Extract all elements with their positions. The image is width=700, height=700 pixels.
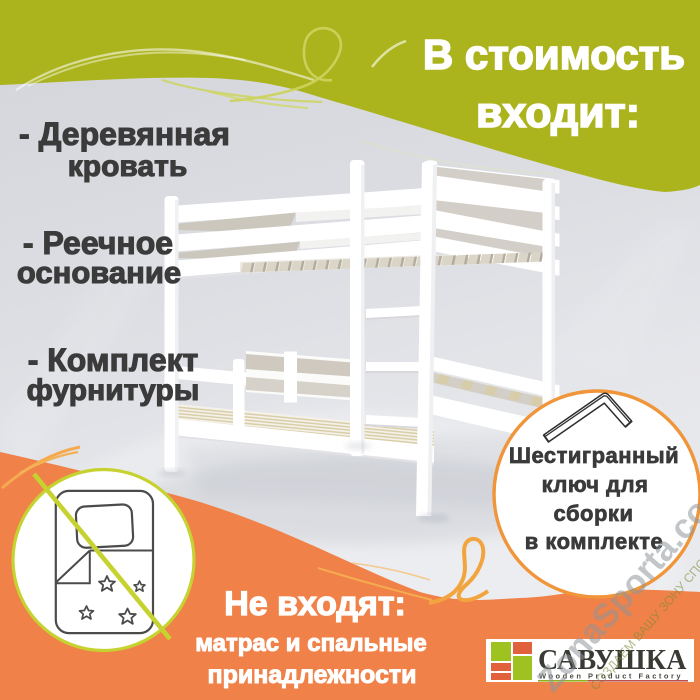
svg-text:входит:: входит: <box>476 89 640 137</box>
svg-text:сборки: сборки <box>554 501 634 526</box>
svg-text:Шестигранный: Шестигранный <box>509 443 679 468</box>
svg-text:принадлежности: принадлежности <box>207 661 416 689</box>
svg-text:- Деревянная: - Деревянная <box>19 116 230 152</box>
svg-text:- Комплект: - Комплект <box>28 342 199 378</box>
svg-text:Не входят:: Не входят: <box>224 585 406 623</box>
svg-text:основание: основание <box>17 255 181 290</box>
svg-text:кровать: кровать <box>68 150 188 183</box>
svg-text:В стоимость: В стоимость <box>423 31 685 78</box>
svg-text:фурнитуры: фурнитуры <box>27 374 200 407</box>
svg-text:ключ для: ключ для <box>542 472 649 497</box>
svg-text:матрас и спальные: матрас и спальные <box>195 630 427 657</box>
